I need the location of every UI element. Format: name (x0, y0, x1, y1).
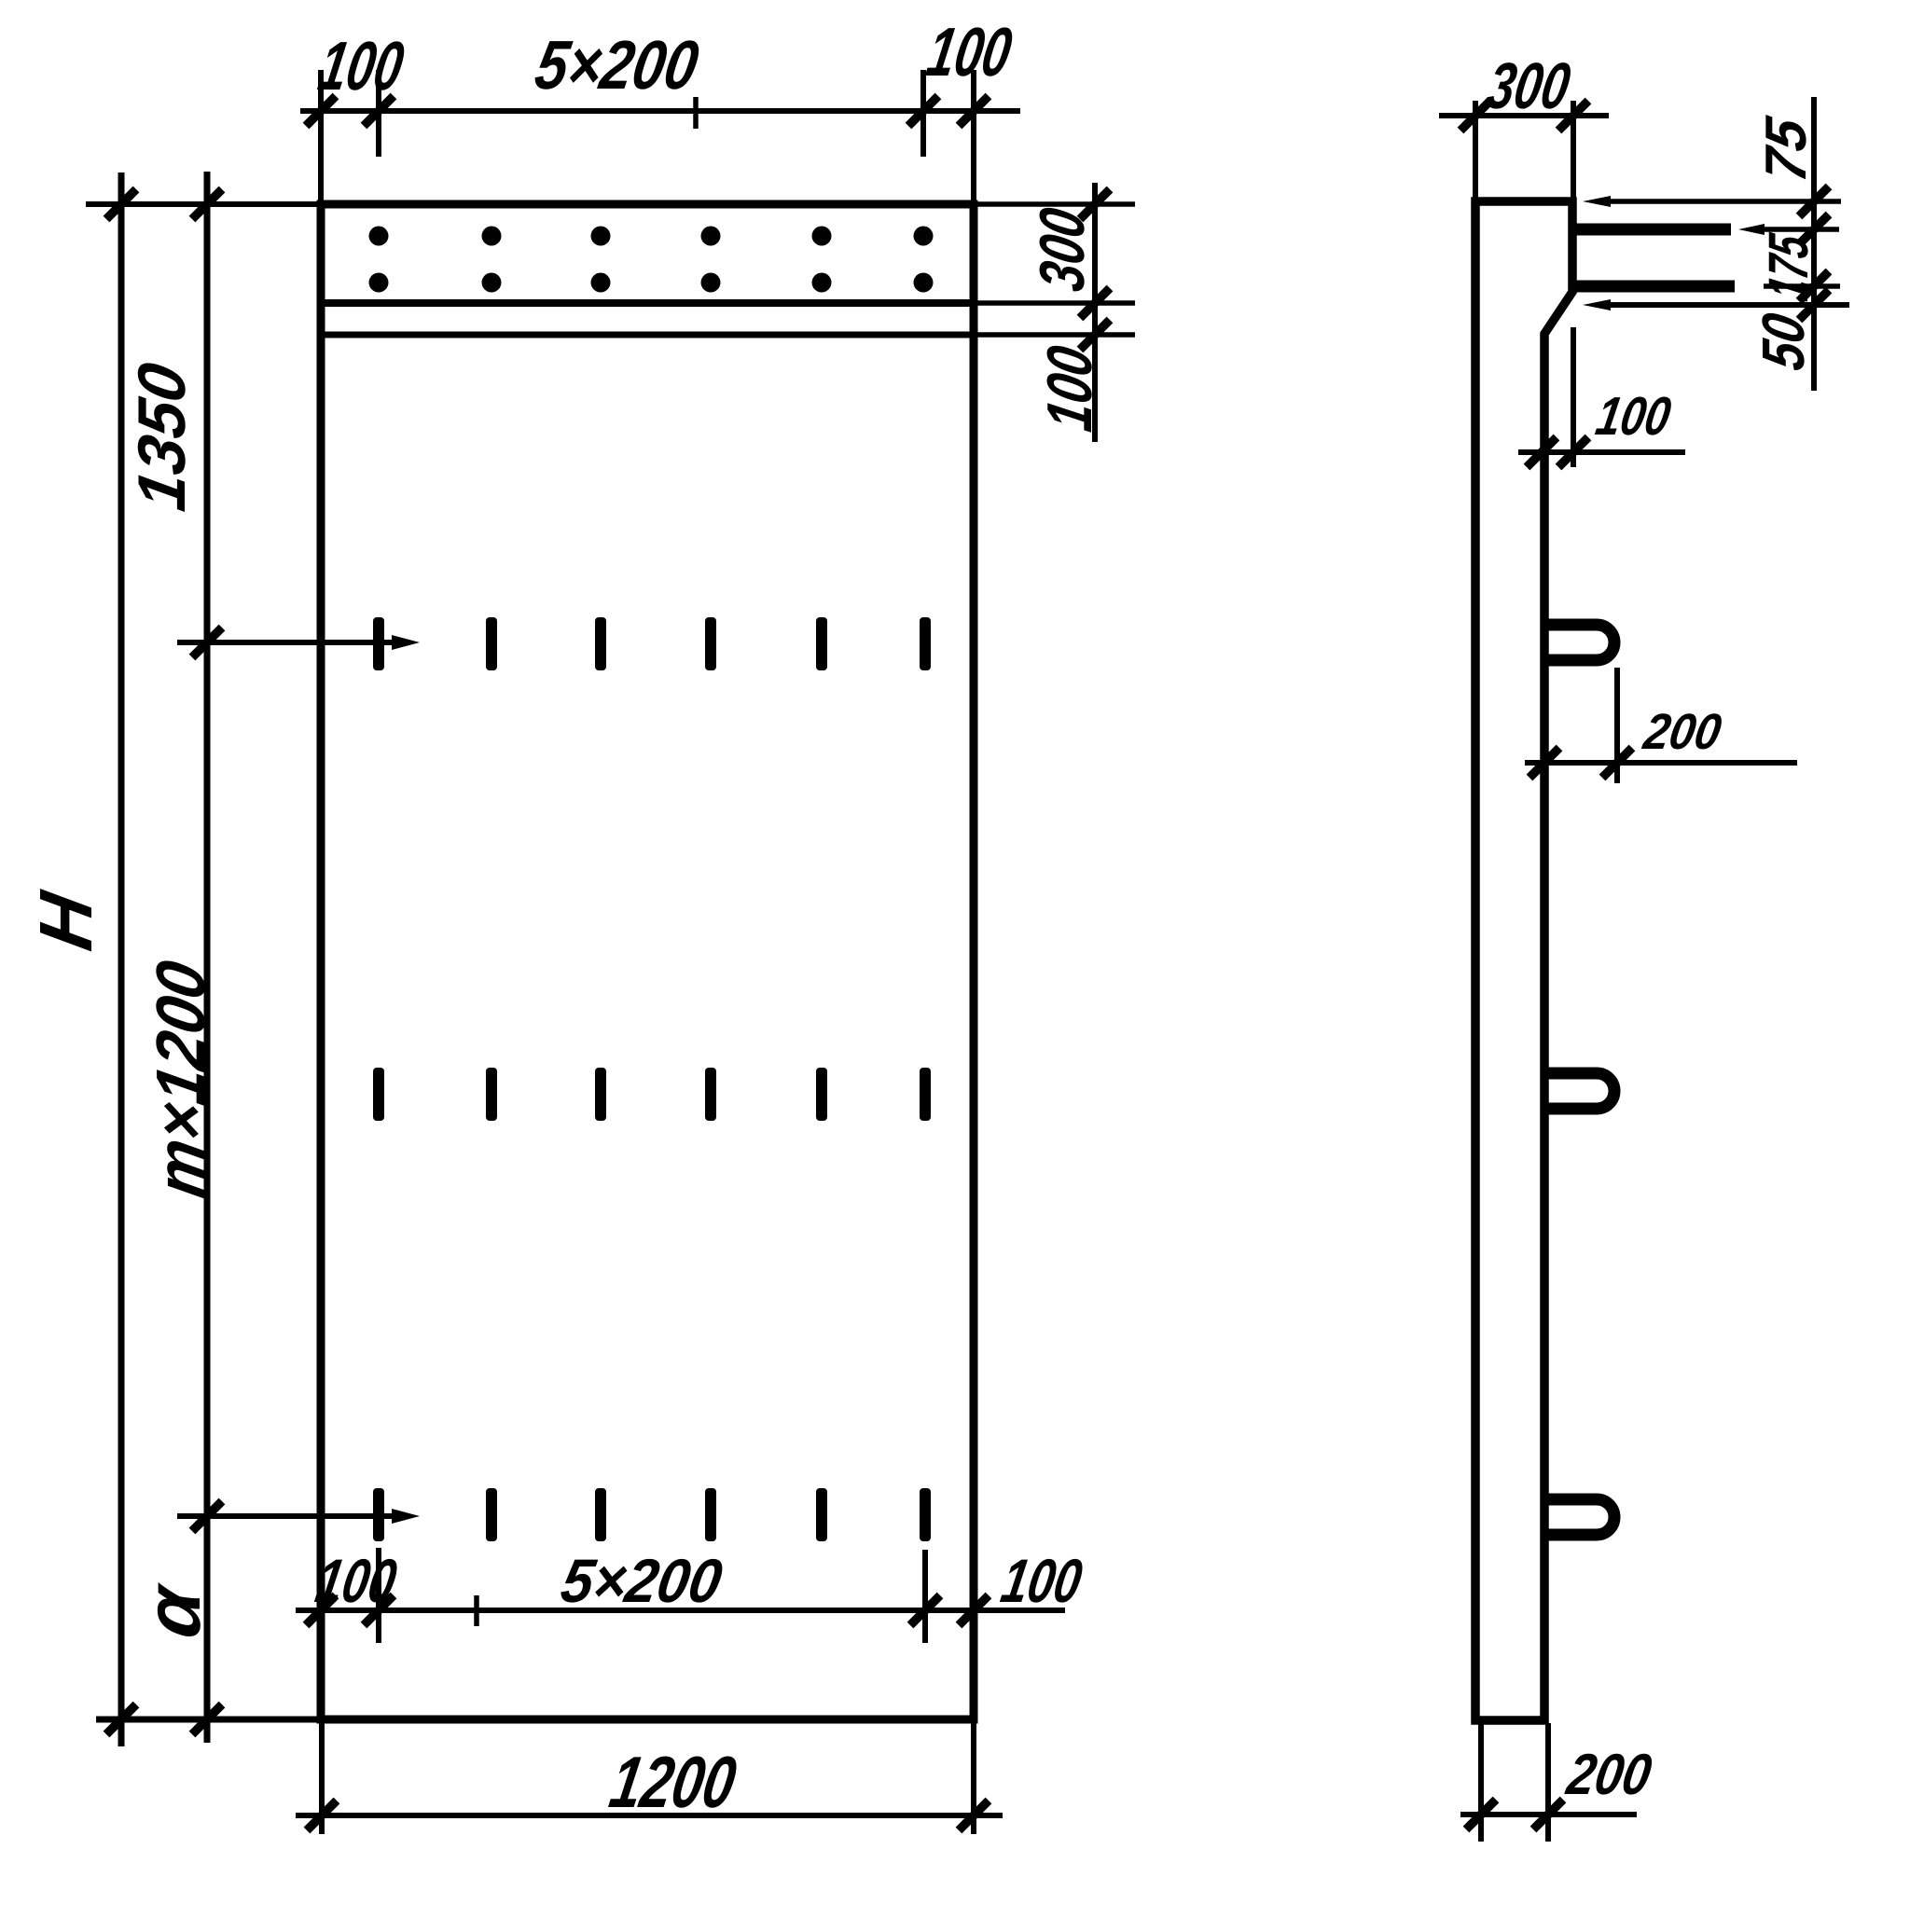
svg-text:300: 300 (1482, 48, 1575, 121)
svg-text:175: 175 (1756, 229, 1819, 305)
svg-text:5×200: 5×200 (530, 26, 704, 103)
svg-text:100: 100 (311, 1547, 401, 1615)
svg-text:100: 100 (1592, 386, 1675, 447)
svg-text:1200: 1200 (604, 1742, 741, 1823)
svg-text:200: 200 (1562, 1742, 1656, 1806)
svg-text:100: 100 (921, 13, 1017, 90)
svg-text:100: 100 (1033, 341, 1104, 435)
svg-text:5×200: 5×200 (556, 1547, 727, 1615)
svg-text:m×1200: m×1200 (142, 956, 219, 1203)
svg-text:75: 75 (1753, 112, 1818, 186)
svg-text:300: 300 (1026, 203, 1097, 296)
svg-text:100: 100 (996, 1547, 1086, 1615)
svg-text:200: 200 (1640, 703, 1726, 760)
svg-text:100: 100 (313, 27, 409, 104)
svg-text:1350: 1350 (124, 358, 199, 516)
